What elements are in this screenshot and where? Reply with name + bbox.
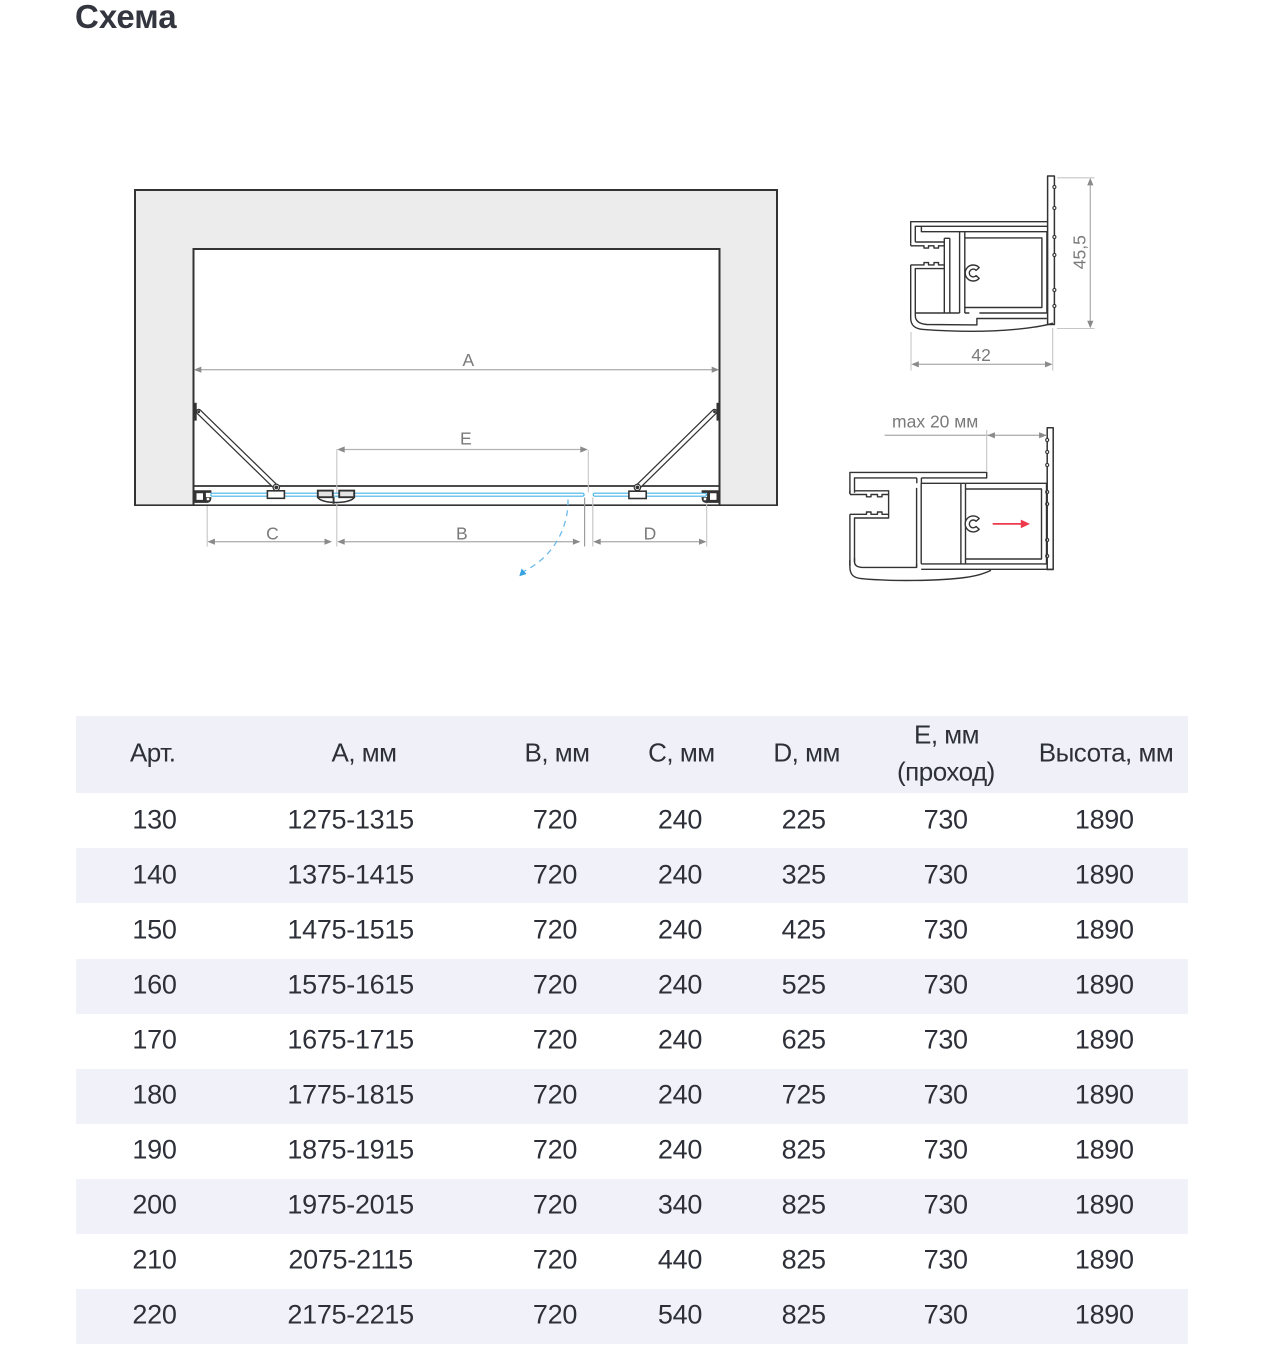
svg-text:max 20 мм: max 20 мм <box>892 412 978 432</box>
svg-text:D: D <box>644 523 657 543</box>
svg-text:42: 42 <box>971 345 990 365</box>
svg-text:45,5: 45,5 <box>1070 235 1090 269</box>
svg-text:E: E <box>460 429 472 449</box>
svg-text:A: A <box>462 350 474 370</box>
svg-text:B: B <box>456 523 468 543</box>
svg-text:C: C <box>266 523 279 543</box>
